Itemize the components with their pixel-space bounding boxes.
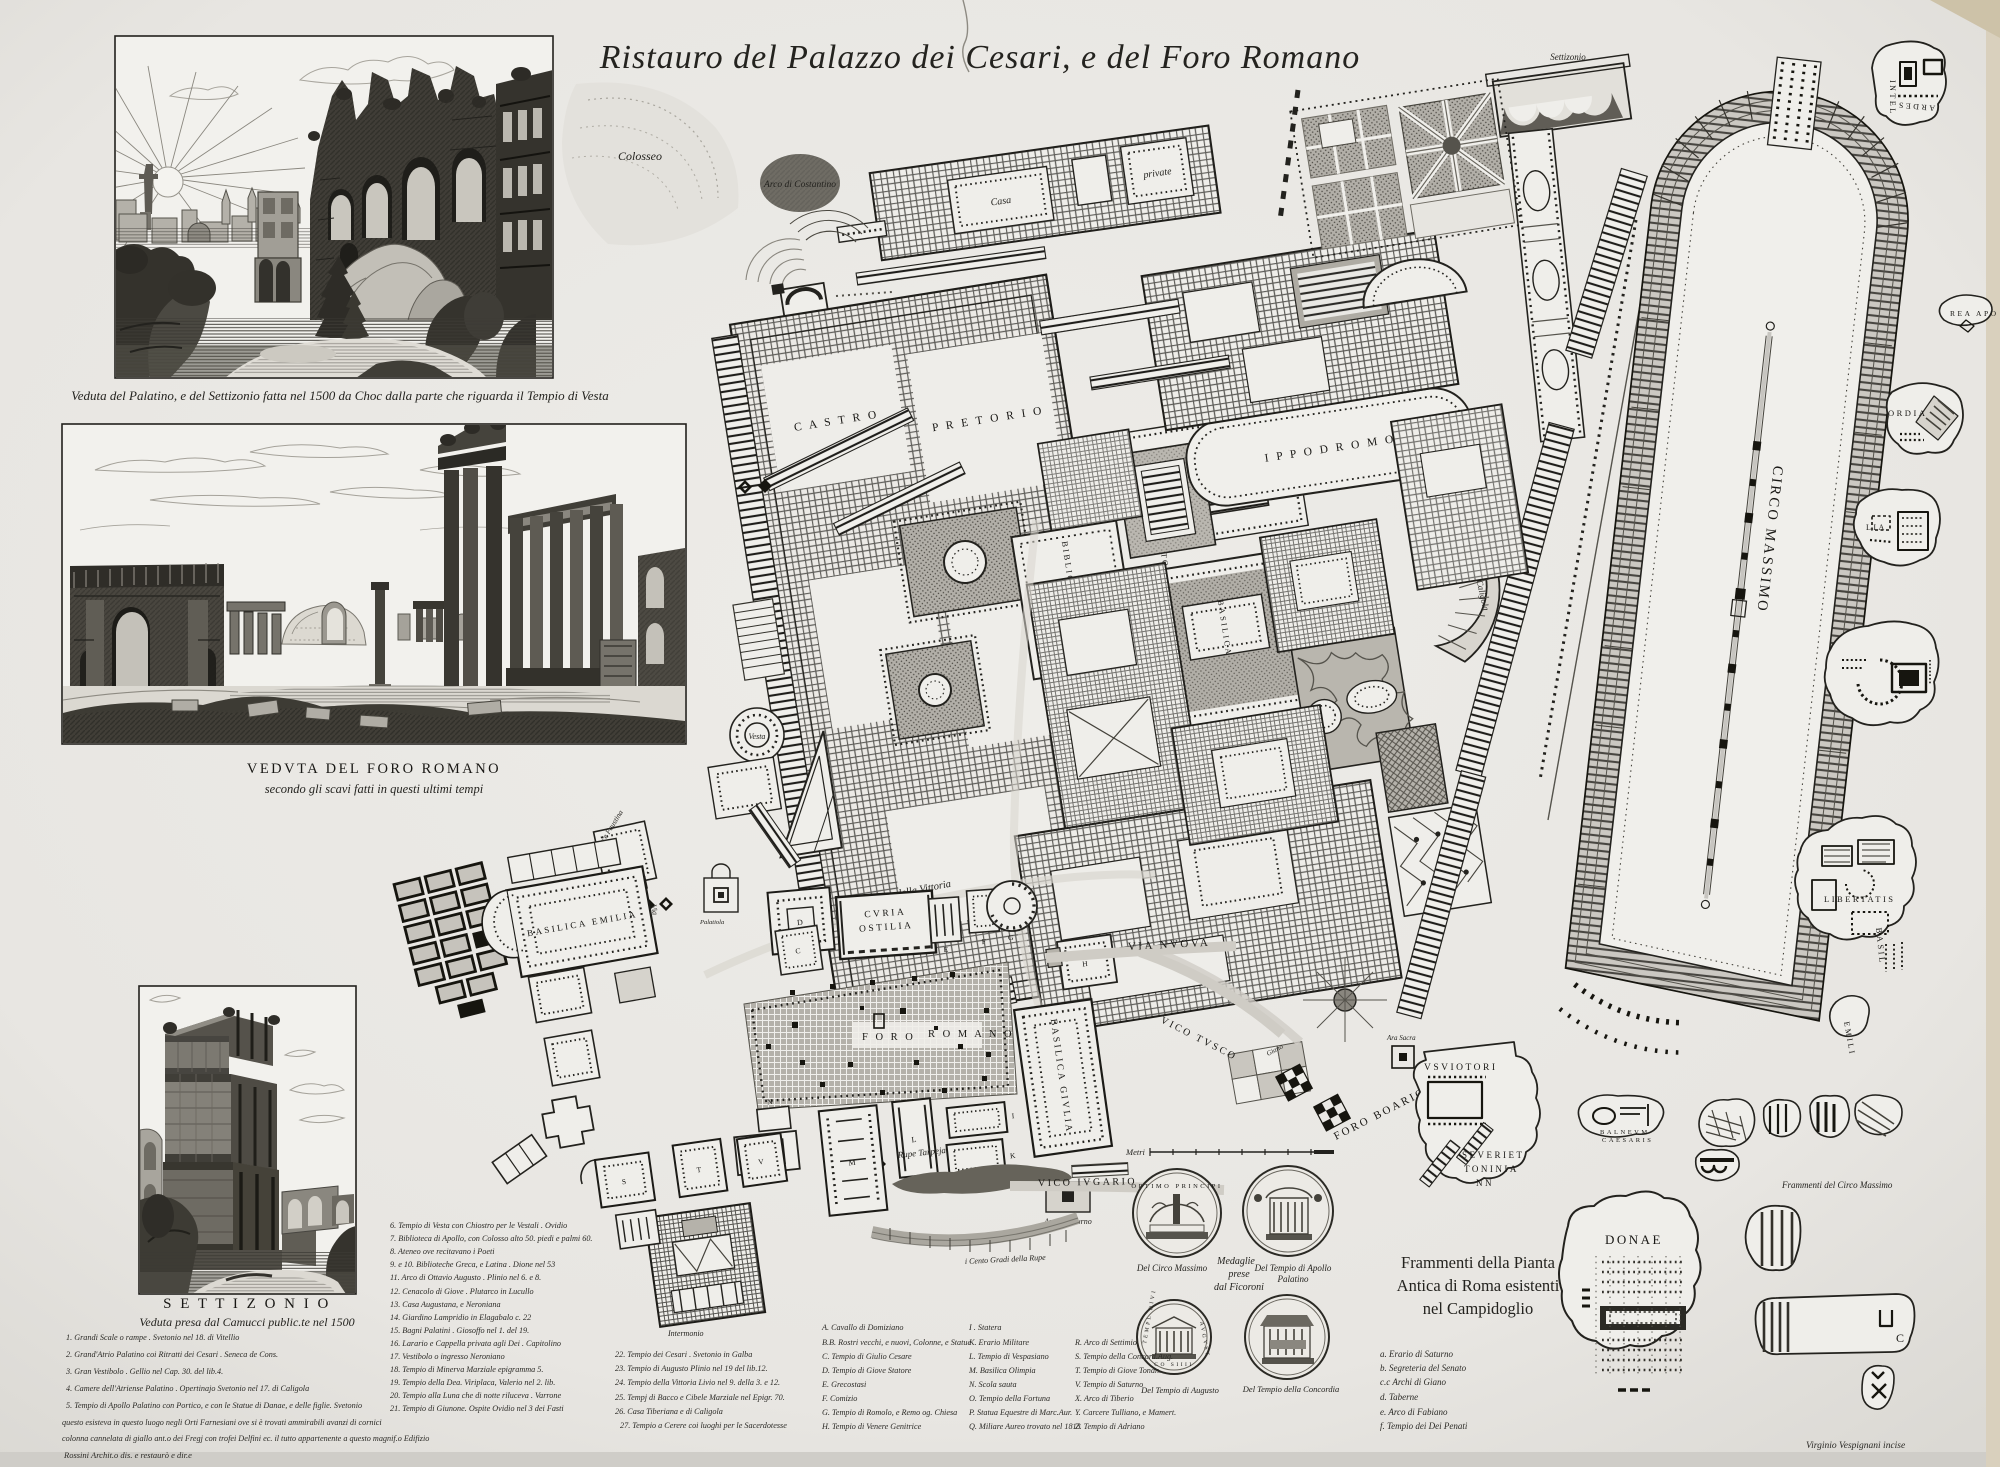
- svg-text:SEVERIET: SEVERIET: [1462, 1150, 1525, 1160]
- svg-text:REA APO: REA APO: [1950, 309, 1999, 318]
- svg-text:L: L: [911, 1135, 919, 1145]
- svg-text:Metri: Metri: [1125, 1147, 1146, 1157]
- svg-text:Del Tempio di Apollo: Del Tempio di Apollo: [1254, 1263, 1332, 1273]
- svg-text:R O M A N O: R O M A N O: [928, 1029, 1014, 1040]
- svg-text:e. Arco di Fabiano: e. Arco di Fabiano: [1380, 1407, 1448, 1417]
- svg-text:ORDIA: ORDIA: [1888, 408, 1927, 418]
- svg-text:G. Tempio di Romolo, e Remo og: G. Tempio di Romolo, e Remo og. Chiesa: [822, 1408, 957, 1417]
- svg-text:Y. Carcere Tulliano, e Mamert.: Y. Carcere Tulliano, e Mamert.: [1075, 1408, 1176, 1417]
- svg-text:O. Tempio della Fortuna: O. Tempio della Fortuna: [969, 1394, 1050, 1403]
- svg-text:Del Tempio di Augusto: Del Tempio di Augusto: [1140, 1385, 1219, 1395]
- svg-text:E. Grecostasi: E. Grecostasi: [821, 1380, 867, 1389]
- svg-text:K: K: [1010, 1151, 1019, 1161]
- svg-text:Intermonio: Intermonio: [667, 1329, 704, 1338]
- svg-text:C: C: [1896, 1331, 1907, 1345]
- svg-text:Del Circo Massimo: Del Circo Massimo: [1136, 1263, 1208, 1273]
- svg-text:24. Tempio della Vittoria Livi: 24. Tempio della Vittoria Livio nel 9. d…: [615, 1378, 780, 1387]
- svg-text:VEDVTA DEL FORO ROMANO: VEDVTA DEL FORO ROMANO: [247, 761, 501, 777]
- svg-text:M: M: [848, 1158, 859, 1168]
- svg-text:6. Tempio di Vesta con Chiostr: 6. Tempio di Vesta con Chiostro per le V…: [390, 1221, 567, 1230]
- svg-text:T: T: [696, 1165, 704, 1175]
- svg-text:D. Tempio di Giove Statore: D. Tempio di Giove Statore: [821, 1366, 912, 1375]
- svg-text:D: D: [797, 918, 806, 928]
- svg-text:18. Tempio di Minerva Marziale: 18. Tempio di Minerva Marziale epigramma…: [390, 1365, 543, 1374]
- svg-text:V. Tempio di Saturno: V. Tempio di Saturno: [1075, 1380, 1143, 1389]
- svg-text:F O R O: F O R O: [862, 1032, 915, 1043]
- svg-text:12. Cenacolo di Giove . Plutar: 12. Cenacolo di Giove . Plutarco in Lucu…: [390, 1287, 534, 1296]
- svg-text:C: C: [795, 946, 804, 956]
- svg-text:LIA: LIA: [1866, 523, 1887, 532]
- svg-text:questo esisteva in questo luog: questo esisteva in questo luogo negli Or…: [62, 1418, 382, 1427]
- svg-text:3. Gran Vestibolo . Gellio nel: 3. Gran Vestibolo . Gellio nel Cap. 30. …: [65, 1367, 223, 1376]
- svg-text:Palatiola: Palatiola: [699, 919, 724, 926]
- svg-text:TONINIA: TONINIA: [1464, 1164, 1519, 1174]
- svg-text:Via: Via: [649, 904, 660, 916]
- svg-text:BALNEVM: BALNEVM: [1600, 1129, 1650, 1136]
- svg-text:Colosseo: Colosseo: [618, 149, 662, 163]
- svg-text:4. Camere dell'Atriense Palati: 4. Camere dell'Atriense Palatino . Opert…: [66, 1384, 309, 1393]
- svg-text:colonna cannelata di giallo an: colonna cannelata di giallo ant.o dei Fr…: [62, 1434, 429, 1443]
- svg-text:dal Ficoroni: dal Ficoroni: [1214, 1282, 1264, 1293]
- svg-text:Vesta: Vesta: [749, 732, 766, 741]
- svg-text:N. Scola sauta: N. Scola sauta: [968, 1380, 1017, 1389]
- svg-text:T. Tempio di Giove Tonan.: T. Tempio di Giove Tonan.: [1075, 1366, 1161, 1375]
- svg-text:CAESARIS: CAESARIS: [1602, 1137, 1653, 1144]
- svg-text:secondo gli scavi fatti in que: secondo gli scavi fatti in questi ultimi…: [265, 782, 484, 796]
- svg-text:f. Tempio dei Dei Penati: f. Tempio dei Dei Penati: [1380, 1421, 1468, 1431]
- svg-text:b. Segreteria del Senato: b. Segreteria del Senato: [1380, 1363, 1467, 1373]
- svg-text:K. Erario Militare: K. Erario Militare: [968, 1338, 1029, 1347]
- svg-text:INTEL: INTEL: [1888, 80, 1897, 116]
- svg-text:S E T T I Z O N I O: S E T T I Z O N I O: [163, 1296, 331, 1312]
- svg-text:26. Casa Tiberiana e di Caligo: 26. Casa Tiberiana e di Caligola: [615, 1407, 723, 1416]
- svg-text:27. Tempio a Cerere coi luoghi: 27. Tempio a Cerere coi luoghi per le Sa…: [620, 1421, 787, 1430]
- svg-text:15. Bagni Palatini . Giosoffo: 15. Bagni Palatini . Giosoffo nel 1. del…: [390, 1326, 529, 1335]
- svg-text:E: E: [943, 945, 951, 954]
- svg-text:C. Tempio di Giulio Cesare: C. Tempio di Giulio Cesare: [822, 1352, 912, 1361]
- svg-text:B.B. Rostri vecchi, e nuovi, C: B.B. Rostri vecchi, e nuovi, Colonne, e …: [822, 1338, 972, 1347]
- svg-text:H: H: [1082, 959, 1091, 969]
- svg-text:Ristauro del Palazzo dei C: Ristauro del Palazzo dei Cesari, e del F…: [599, 39, 1360, 76]
- svg-text:Palatino: Palatino: [1277, 1274, 1309, 1284]
- svg-text:22. Tempio dei Cesari . Sveton: 22. Tempio dei Cesari . Svetonio in Galb…: [615, 1350, 752, 1359]
- svg-text:I . Statera: I . Statera: [968, 1323, 1002, 1332]
- svg-text:8. Ateneo ove recitavano i Poe: 8. Ateneo ove recitavano i Poeti: [390, 1247, 495, 1256]
- svg-text:S. Tempio della Concord.Aug.: S. Tempio della Concord.Aug.: [1075, 1352, 1173, 1361]
- svg-text:11. Arco di Ottavio Augusto .: 11. Arco di Ottavio Augusto . Plinio nel…: [390, 1273, 541, 1282]
- svg-text:M. Basilica Olimpia: M. Basilica Olimpia: [968, 1366, 1036, 1375]
- svg-text:R. Arco di Settimio: R. Arco di Settimio: [1074, 1338, 1137, 1347]
- svg-text:Del Tempio della Concordia: Del Tempio della Concordia: [1242, 1384, 1339, 1394]
- svg-text:LIBERTATIS: LIBERTATIS: [1824, 894, 1896, 904]
- svg-text:Antica di Roma esistenti: Antica di Roma esistenti: [1397, 1276, 1560, 1295]
- svg-text:19. Tempio della Dea. Viriplac: 19. Tempio della Dea. Viriplaca, Valerio…: [390, 1378, 555, 1387]
- svg-text:17. Vestibolo o ingresso Neron: 17. Vestibolo o ingresso Neroniano: [390, 1352, 505, 1361]
- svg-text:S: S: [621, 1177, 629, 1187]
- svg-text:I: I: [1011, 1111, 1017, 1120]
- svg-text:7. Biblioteca di Apollo, con C: 7. Biblioteca di Apollo, con Colosso alt…: [390, 1234, 592, 1243]
- svg-text:a. Erario di Saturno: a. Erario di Saturno: [1380, 1349, 1454, 1359]
- svg-text:Frammenti del Circo Massimo: Frammenti del Circo Massimo: [1781, 1180, 1893, 1190]
- svg-text:Veduta presa dal Camucci publi: Veduta presa dal Camucci public.te nel 1…: [139, 1315, 354, 1329]
- svg-text:14. Giardino Lampridio in Elag: 14. Giardino Lampridio in Elagabalo c. 2…: [390, 1313, 531, 1322]
- svg-text:P. Statua Equestre di Marc.Aur: P. Statua Equestre di Marc.Aur.: [968, 1408, 1072, 1417]
- svg-text:Arco di Costantino: Arco di Costantino: [763, 180, 836, 190]
- svg-text:Veduta del Palatino, e del Set: Veduta del Palatino, e del Settizonio fa…: [71, 388, 609, 403]
- svg-text:d. Taberne: d. Taberne: [1380, 1392, 1418, 1402]
- svg-text:9. e 10. Biblioteche Greca, e: 9. e 10. Biblioteche Greca, e Latina . D…: [390, 1260, 555, 1269]
- svg-text:OPTIMO PRINCIPI: OPTIMO PRINCIPI: [1131, 1183, 1222, 1190]
- svg-text:c.c Archi di Giano: c.c Archi di Giano: [1380, 1377, 1446, 1387]
- svg-text:2. Grand'Atrio Palatino coi Ri: 2. Grand'Atrio Palatino coi Ritratti dei…: [66, 1350, 278, 1359]
- svg-text:21. Tempio di Giunone. Ospite: 21. Tempio di Giunone. Ospite Ovidio nel…: [390, 1404, 564, 1413]
- svg-text:Virginio Vespignani incise: Virginio Vespignani incise: [1806, 1441, 1905, 1451]
- svg-text:F. Comizio: F. Comizio: [821, 1394, 857, 1403]
- svg-text:13. Casa Augustana, e Neronian: 13. Casa Augustana, e Neroniana: [390, 1300, 501, 1309]
- svg-text:A. Cavallo di Domiziano: A. Cavallo di Domiziano: [821, 1323, 903, 1332]
- svg-text:Frammenti della Pianta: Frammenti della Pianta: [1401, 1253, 1556, 1272]
- svg-text:16. Larario e Cappella privata: 16. Larario e Cappella privata agli Dei …: [390, 1339, 561, 1348]
- svg-text:H. Tempio di Venere Genitrice: H. Tempio di Venere Genitrice: [821, 1422, 922, 1431]
- svg-text:5. Tempio di Apollo Palatino c: 5. Tempio di Apollo Palatino con Portico…: [66, 1401, 362, 1410]
- svg-text:Z. Tempio di Adriano: Z. Tempio di Adriano: [1075, 1422, 1145, 1431]
- svg-text:nel Campidoglio: nel Campidoglio: [1423, 1299, 1533, 1318]
- svg-text:V: V: [758, 1156, 767, 1166]
- svg-text:20. Tempio alla Luna che di no: 20. Tempio alla Luna che di notte riluce…: [390, 1391, 561, 1400]
- svg-text:1. Grandi Scale o rampe . Svet: 1. Grandi Scale o rampe . Svetonio nel 1…: [66, 1333, 239, 1342]
- svg-text:G: G: [1008, 933, 1016, 942]
- svg-text:VICO IVGARIO: VICO IVGARIO: [1038, 1176, 1137, 1189]
- svg-text:23. Tempio di Augusto Plinio n: 23. Tempio di Augusto Plinio nel 19 del …: [615, 1364, 768, 1373]
- svg-text:X. Arco di Tiberio: X. Arco di Tiberio: [1074, 1394, 1134, 1403]
- svg-text:L. Tempio di Vespasiano: L. Tempio di Vespasiano: [968, 1352, 1049, 1361]
- svg-text:25. Tempj di Bacco e Cibele Ma: 25. Tempj di Bacco e Cibele Marziale nel…: [615, 1393, 785, 1402]
- svg-text:F: F: [981, 937, 988, 946]
- svg-text:prese: prese: [1227, 1269, 1250, 1280]
- svg-text:Rossini Archit.o dis. e restau: Rossini Archit.o dis. e restaurò e dir.e: [63, 1450, 192, 1460]
- svg-text:Ara Sacra: Ara Sacra: [1386, 1034, 1416, 1042]
- svg-text:Medaglie: Medaglie: [1216, 1256, 1255, 1267]
- svg-text:N: N: [767, 1097, 776, 1107]
- svg-text:Settizonio: Settizonio: [1550, 52, 1586, 62]
- svg-text:VSVIOTORI: VSVIOTORI: [1424, 1063, 1498, 1073]
- svg-text:DONAE: DONAE: [1605, 1232, 1663, 1247]
- svg-text:NN: NN: [1476, 1178, 1494, 1188]
- svg-text:Q. Miliare Aureo trovato nel 1: Q. Miliare Aureo trovato nel 1813: [969, 1422, 1081, 1431]
